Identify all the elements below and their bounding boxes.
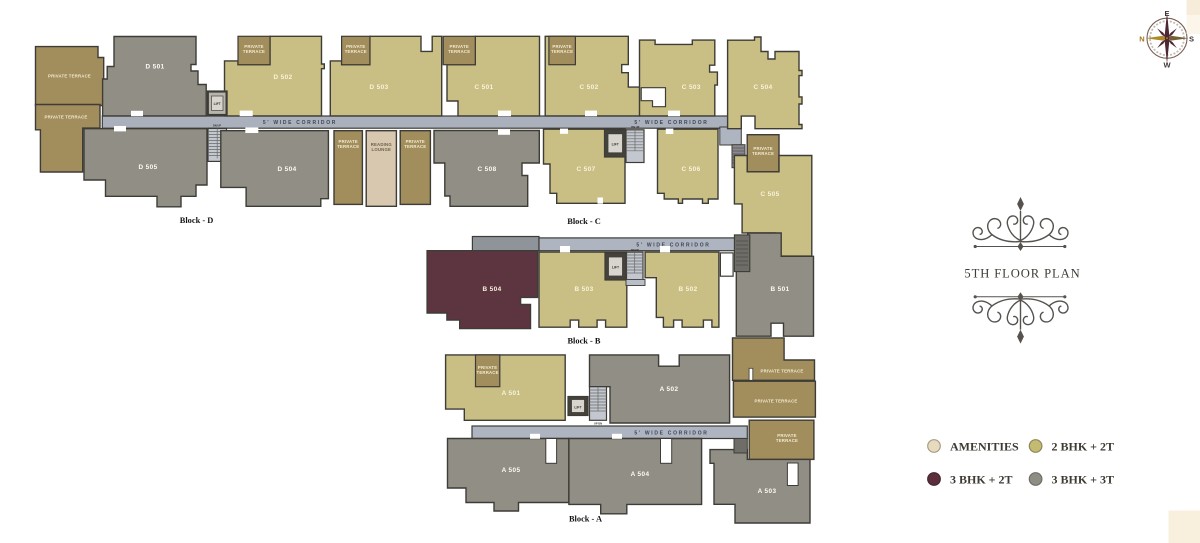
svg-text:A 505: A 505 [502,467,521,474]
svg-text:Block - D: Block - D [180,216,214,225]
svg-text:PRIVATETERRACE: PRIVATETERRACE [776,433,798,443]
svg-text:PRIVATETERRACE: PRIVATETERRACE [337,139,359,149]
svg-text:A 501: A 501 [502,390,521,397]
svg-text:D 504: D 504 [277,166,296,173]
svg-text:5' WIDE CORRIDOR: 5' WIDE CORRIDOR [263,120,337,126]
svg-text:B 504: B 504 [482,286,501,293]
svg-text:Block - B: Block - B [567,337,600,346]
svg-text:A 502: A 502 [660,386,679,393]
svg-text:PRIVATETERRACE: PRIVATETERRACE [477,365,499,375]
svg-text:PRIVATETERRACE: PRIVATETERRACE [243,44,265,54]
svg-text:C 507: C 507 [576,166,595,173]
svg-text:N: N [1139,35,1144,44]
svg-text:PRIVATETERRACE: PRIVATETERRACE [404,139,426,149]
svg-text:LIFT: LIFT [574,406,582,410]
svg-text:D 501: D 501 [145,64,164,71]
svg-text:2 BHK + 2T: 2 BHK + 2T [1052,440,1115,454]
svg-text:B 502: B 502 [678,286,697,293]
svg-text:PRIVATE TERRACE: PRIVATE TERRACE [761,369,804,374]
svg-text:PRIVATETERRACE: PRIVATETERRACE [345,44,367,54]
svg-text:D 503: D 503 [369,84,388,91]
svg-text:PRIVATETERRACE: PRIVATETERRACE [551,44,573,54]
svg-text:C 501: C 501 [474,84,493,91]
svg-text:READINGLOUNGE: READINGLOUNGE [371,142,393,152]
svg-text:AMENITIES: AMENITIES [950,440,1019,454]
svg-text:C 502: C 502 [579,84,598,91]
svg-text:C 505: C 505 [760,191,779,198]
svg-text:B 503: B 503 [574,286,593,293]
svg-text:D 502: D 502 [273,74,292,81]
svg-text:D 505: D 505 [138,164,157,171]
svg-text:LIFT: LIFT [612,266,620,270]
svg-text:5' WIDE CORRIDOR: 5' WIDE CORRIDOR [634,120,708,126]
svg-text:LIFT: LIFT [612,143,620,147]
svg-text:DN UP: DN UP [213,124,221,128]
svg-text:3 BHK + 2T: 3 BHK + 2T [950,473,1013,487]
svg-text:A 503: A 503 [758,488,777,495]
svg-text:PRIVATE TERRACE: PRIVATE TERRACE [755,399,798,404]
svg-text:C 504: C 504 [753,84,772,91]
svg-text:PRIVATETERRACE: PRIVATETERRACE [448,44,470,54]
svg-text:S: S [1189,35,1194,44]
svg-text:E: E [1164,9,1169,18]
svg-text:B 501: B 501 [770,286,789,293]
svg-text:5' WIDE CORRIDOR: 5' WIDE CORRIDOR [636,243,710,249]
svg-text:5' WIDE CORRIDOR: 5' WIDE CORRIDOR [634,431,708,437]
svg-text:C 508: C 508 [477,166,496,173]
svg-text:UP DN: UP DN [594,421,602,425]
svg-text:Block - A: Block - A [569,515,602,524]
svg-text:LIFT: LIFT [214,102,222,106]
svg-text:PRIVATETERRACE: PRIVATETERRACE [752,146,774,156]
svg-text:W: W [1163,61,1171,70]
svg-text:C 503: C 503 [682,84,701,91]
svg-text:PRIVATE TERRACE: PRIVATE TERRACE [45,115,88,120]
svg-text:5TH FLOOR PLAN: 5TH FLOOR PLAN [964,267,1080,281]
svg-text:PRIVATE TERRACE: PRIVATE TERRACE [48,74,91,79]
svg-text:A 504: A 504 [631,471,650,478]
svg-text:3 BHK + 3T: 3 BHK + 3T [1052,473,1115,487]
svg-text:C 506: C 506 [681,166,700,173]
svg-text:Block - C: Block - C [567,217,601,226]
